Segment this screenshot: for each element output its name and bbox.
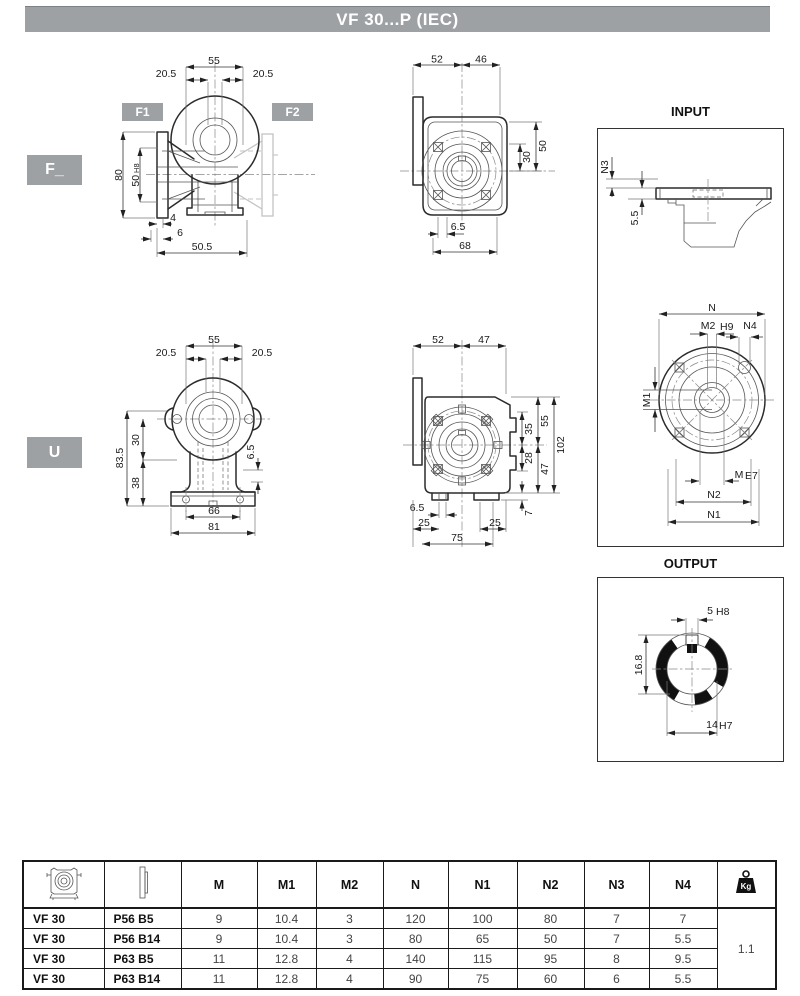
dim-66: 66 bbox=[208, 505, 220, 517]
dim-6-5: 6.5 bbox=[451, 221, 466, 233]
cell-version: P63 B5 bbox=[104, 949, 181, 969]
cell-n2: 80 bbox=[517, 908, 584, 929]
catalog-page: VF 30...P (IEC) F_ U F1 F2 bbox=[0, 0, 800, 996]
drawing-input-flange: N3 5.5 bbox=[598, 129, 783, 544]
drawing-f-side-view: 55 20.5 20.5 80 50H8 4 6 50.5 bbox=[110, 55, 335, 270]
dim-28: 28 bbox=[523, 452, 535, 464]
dim-47b: 47 bbox=[539, 463, 551, 475]
cell-m2: 4 bbox=[316, 949, 383, 969]
dim-52: 52 bbox=[431, 55, 443, 66]
table-row: VF 30 P56 B5 9 10.4 3 120 100 80 7 7 1.1 bbox=[23, 908, 776, 929]
f-side-outline bbox=[146, 63, 315, 227]
drawing-f-front-view: 52 46 50 30 6.5 68 bbox=[390, 55, 565, 265]
table-row: VF 30 P56 B14 9 10.4 3 80 65 50 7 5.5 bbox=[23, 929, 776, 949]
cell-version: P56 B14 bbox=[104, 929, 181, 949]
output-panel: OUTPUT 5 bbox=[597, 556, 784, 762]
cell-n4: 7 bbox=[649, 908, 717, 929]
dim-4: 4 bbox=[170, 212, 176, 224]
dim-m: M bbox=[735, 469, 744, 481]
col-header-n1: N1 bbox=[448, 861, 517, 908]
cell-n3: 8 bbox=[584, 949, 649, 969]
dim-68: 68 bbox=[459, 240, 471, 252]
col-header-m: M bbox=[181, 861, 257, 908]
dim-35: 35 bbox=[523, 423, 535, 435]
dim-55: 55 bbox=[539, 415, 551, 427]
dim-50H8: 50H8 bbox=[130, 163, 142, 186]
gearbox-column-header bbox=[23, 861, 104, 908]
dim-25-left: 25 bbox=[418, 517, 430, 529]
table-row: VF 30 P63 B5 11 12.8 4 140 115 95 8 9.5 bbox=[23, 949, 776, 969]
cell-n: 80 bbox=[383, 929, 448, 949]
input-title: INPUT bbox=[597, 104, 784, 122]
flange-column-header bbox=[104, 861, 181, 908]
dim-14: 14 bbox=[706, 719, 718, 731]
cell-n: 90 bbox=[383, 969, 448, 990]
cell-version: P56 B5 bbox=[104, 908, 181, 929]
input-flange-outline bbox=[643, 347, 774, 453]
col-header-n4: N4 bbox=[649, 861, 717, 908]
dimension-table: M M1 M2 N N1 N2 N3 N4 Kg VF 30 bbox=[22, 860, 777, 990]
col-header-n2: N2 bbox=[517, 861, 584, 908]
kg-icon: Kg bbox=[733, 869, 759, 897]
dim-6: 6 bbox=[177, 227, 183, 239]
dim-6-5: 6.5 bbox=[410, 502, 425, 514]
col-header-n: N bbox=[383, 861, 448, 908]
dim-n: N bbox=[708, 302, 716, 314]
mount-label-u: U bbox=[27, 437, 82, 468]
gearbox-icon bbox=[41, 863, 87, 903]
dim-20-5-left: 20.5 bbox=[156, 347, 177, 359]
cell-model: VF 30 bbox=[23, 969, 104, 990]
dim-55: 55 bbox=[208, 55, 220, 67]
dim-m1: M1 bbox=[641, 393, 653, 408]
dim-80: 80 bbox=[113, 169, 125, 181]
cell-n1: 115 bbox=[448, 949, 517, 969]
f-front-dimensions: 52 46 50 30 6.5 68 bbox=[413, 55, 549, 255]
f-side-dimensions: 55 20.5 20.5 80 50H8 4 6 50.5 bbox=[113, 55, 273, 257]
drawing-u-front-view: 55 20.5 20.5 83.5 30 38 6.5 66 bbox=[105, 330, 330, 545]
dim-5-tol: H8 bbox=[716, 606, 730, 618]
cell-m1: 10.4 bbox=[257, 929, 316, 949]
cell-n3: 6 bbox=[584, 969, 649, 990]
dim-n1: N1 bbox=[707, 509, 721, 521]
mount-label-f: F_ bbox=[27, 155, 82, 185]
cell-n4: 5.5 bbox=[649, 929, 717, 949]
output-outline bbox=[652, 628, 734, 712]
u-front-outline bbox=[157, 340, 270, 515]
dim-7: 7 bbox=[523, 510, 535, 516]
cell-model: VF 30 bbox=[23, 908, 104, 929]
cell-m2: 3 bbox=[316, 929, 383, 949]
cell-n3: 7 bbox=[584, 929, 649, 949]
input-section-outline bbox=[656, 179, 771, 247]
dim-38: 38 bbox=[130, 477, 142, 489]
cell-version: P63 B14 bbox=[104, 969, 181, 990]
col-header-m2: M2 bbox=[316, 861, 383, 908]
cell-n4: 9.5 bbox=[649, 949, 717, 969]
dim-75: 75 bbox=[451, 532, 463, 544]
dim-30: 30 bbox=[521, 151, 533, 163]
cell-m1: 10.4 bbox=[257, 908, 316, 929]
dim-50-5: 50.5 bbox=[192, 241, 213, 253]
cell-n1: 100 bbox=[448, 908, 517, 929]
flange-icon bbox=[131, 863, 155, 903]
cell-m1: 12.8 bbox=[257, 949, 316, 969]
dim-5-5: 5.5 bbox=[629, 211, 641, 226]
cell-n: 140 bbox=[383, 949, 448, 969]
cell-model: VF 30 bbox=[23, 929, 104, 949]
dim-16-8: 16.8 bbox=[633, 655, 645, 676]
cell-n2: 50 bbox=[517, 929, 584, 949]
dim-20-5-right: 20.5 bbox=[252, 347, 273, 359]
output-title: OUTPUT bbox=[597, 556, 784, 574]
dim-m2-tol: H9 bbox=[720, 321, 734, 333]
cell-n2: 60 bbox=[517, 969, 584, 990]
input-panel: INPUT N3 bbox=[597, 104, 784, 547]
cell-m: 11 bbox=[181, 969, 257, 990]
dim-102: 102 bbox=[555, 436, 567, 454]
dim-n2: N2 bbox=[707, 489, 721, 501]
col-header-m1: M1 bbox=[257, 861, 316, 908]
dim-46: 46 bbox=[475, 55, 487, 66]
weight-column-header: Kg bbox=[717, 861, 776, 908]
cell-m1: 12.8 bbox=[257, 969, 316, 990]
dim-81: 81 bbox=[208, 521, 220, 533]
cell-n4: 5.5 bbox=[649, 969, 717, 990]
dim-55: 55 bbox=[208, 334, 220, 346]
cell-n2: 95 bbox=[517, 949, 584, 969]
f-front-outline bbox=[400, 63, 555, 230]
dim-30: 30 bbox=[130, 434, 142, 446]
dim-20-5-left: 20.5 bbox=[156, 68, 177, 80]
cell-n1: 75 bbox=[448, 969, 517, 990]
cell-model: VF 30 bbox=[23, 949, 104, 969]
dim-52: 52 bbox=[432, 334, 444, 346]
u-side-dimensions: 52 47 35 28 55 47 102 7 6.5 bbox=[410, 334, 567, 547]
cell-weight: 1.1 bbox=[717, 908, 776, 989]
drawing-u-side-view: 52 47 35 28 55 47 102 7 6.5 bbox=[395, 330, 575, 555]
dim-n4: N4 bbox=[743, 320, 757, 332]
dim-14-tol: H7 bbox=[719, 720, 733, 732]
dim-47: 47 bbox=[478, 334, 490, 346]
col-header-n3: N3 bbox=[584, 861, 649, 908]
page-title: VF 30...P (IEC) bbox=[25, 6, 770, 32]
dim-5: 5 bbox=[707, 605, 713, 617]
dim-83-5: 83.5 bbox=[114, 448, 126, 469]
dim-20-5-right: 20.5 bbox=[253, 68, 274, 80]
table-row: VF 30 P63 B14 11 12.8 4 90 75 60 6 5.5 bbox=[23, 969, 776, 990]
cell-m2: 4 bbox=[316, 969, 383, 990]
cell-m: 11 bbox=[181, 949, 257, 969]
cell-n3: 7 bbox=[584, 908, 649, 929]
drawing-output-bore: 5 H8 16.8 14 H7 bbox=[598, 578, 783, 759]
cell-m2: 3 bbox=[316, 908, 383, 929]
dim-50: 50 bbox=[537, 140, 549, 152]
kg-icon-label: Kg bbox=[741, 882, 752, 891]
dim-n3: N3 bbox=[599, 160, 611, 174]
cell-n: 120 bbox=[383, 908, 448, 929]
dim-m2: M2 bbox=[701, 320, 716, 332]
cell-m: 9 bbox=[181, 908, 257, 929]
dim-25-right: 25 bbox=[489, 517, 501, 529]
input-section-dims: N3 5.5 bbox=[599, 157, 658, 225]
dim-m-tol: E7 bbox=[745, 470, 758, 482]
cell-m: 9 bbox=[181, 929, 257, 949]
cell-n1: 65 bbox=[448, 929, 517, 949]
input-flange-dims: N M2 H9 N4 M1 bbox=[641, 302, 765, 526]
table-header-row: M M1 M2 N N1 N2 N3 N4 Kg bbox=[23, 861, 776, 908]
dim-6-5: 6.5 bbox=[245, 445, 257, 460]
